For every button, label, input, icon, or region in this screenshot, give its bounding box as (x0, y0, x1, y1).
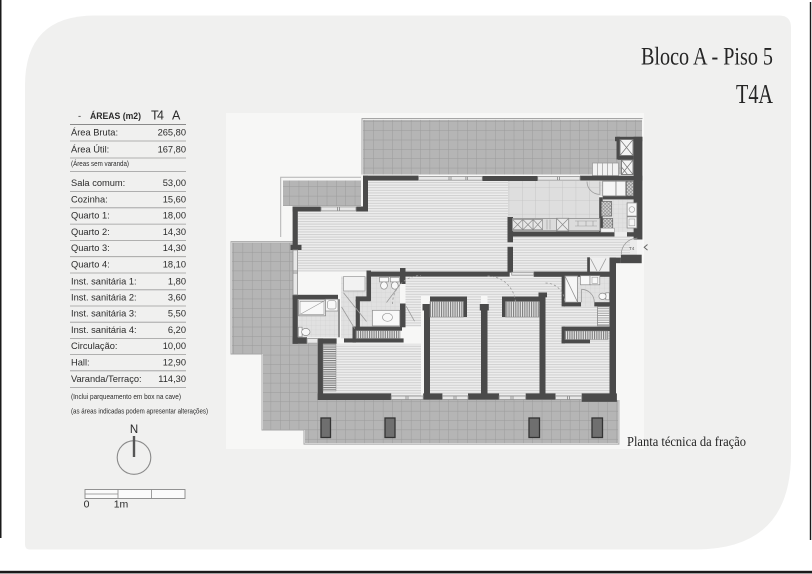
svg-text:Planta técnica da fração: Planta técnica da fração (627, 434, 746, 449)
svg-text:Inst. sanitária 1:: Inst. sanitária 1: (71, 276, 137, 286)
svg-text:14,30: 14,30 (163, 227, 186, 237)
svg-text:T4: T4 (151, 109, 164, 123)
svg-text:6,20: 6,20 (168, 325, 186, 335)
svg-text:53,00: 53,00 (163, 178, 186, 188)
svg-text:Quarto 4:: Quarto 4: (71, 260, 110, 270)
svg-text:Quarto 1:: Quarto 1: (71, 211, 110, 221)
svg-text:1,80: 1,80 (168, 276, 186, 286)
svg-text:(Áreas sem varanda): (Áreas sem varanda) (71, 159, 129, 168)
svg-text:(as áreas indicadas podem apre: (as áreas indicadas podem apresentar alt… (71, 407, 208, 416)
svg-text:Sala comum:: Sala comum: (71, 178, 125, 188)
svg-text:T4: T4 (629, 246, 635, 251)
svg-text:Área Bruta:: Área Bruta: (71, 128, 118, 138)
svg-text:265,80: 265,80 (158, 128, 186, 138)
svg-text:T4A: T4A (736, 79, 773, 109)
svg-text:167,80: 167,80 (158, 145, 186, 155)
svg-text:-: - (78, 111, 81, 121)
svg-text:3,60: 3,60 (168, 293, 186, 303)
svg-text:12,90: 12,90 (163, 357, 186, 367)
svg-text:Quarto 2:: Quarto 2: (71, 227, 110, 237)
svg-text:114,30: 114,30 (158, 374, 186, 384)
svg-text:10,00: 10,00 (163, 341, 186, 351)
svg-text:Inst. sanitária 4:: Inst. sanitária 4: (71, 325, 137, 335)
svg-text:18,10: 18,10 (163, 260, 186, 270)
svg-text:Hall:: Hall: (71, 357, 90, 367)
svg-text:A: A (172, 109, 181, 123)
svg-text:Área Útil:: Área Útil: (71, 145, 109, 155)
svg-text:Circulação:: Circulação: (71, 341, 118, 351)
svg-text:Varanda/Terraço:: Varanda/Terraço: (71, 374, 142, 384)
svg-text:Quarto 3:: Quarto 3: (71, 243, 110, 253)
svg-text:(Inclui parqueamento em box na: (Inclui parqueamento em box na cave) (71, 392, 181, 401)
svg-text:1m: 1m (114, 499, 129, 511)
svg-text:ÁREAS (m2): ÁREAS (m2) (90, 111, 141, 121)
svg-text:Cozinha:: Cozinha: (71, 194, 108, 204)
svg-text:Inst. sanitária 2:: Inst. sanitária 2: (71, 293, 137, 303)
svg-text:Inst. sanitária 3:: Inst. sanitária 3: (71, 309, 137, 319)
svg-text:15,60: 15,60 (163, 194, 186, 204)
svg-text:5,50: 5,50 (168, 309, 186, 319)
svg-text:0: 0 (84, 499, 90, 511)
svg-text:18,00: 18,00 (163, 211, 186, 221)
svg-text:Bloco A - Piso 5: Bloco A - Piso 5 (641, 42, 773, 71)
svg-text:14,30: 14,30 (163, 243, 186, 253)
svg-text:N: N (130, 424, 138, 436)
